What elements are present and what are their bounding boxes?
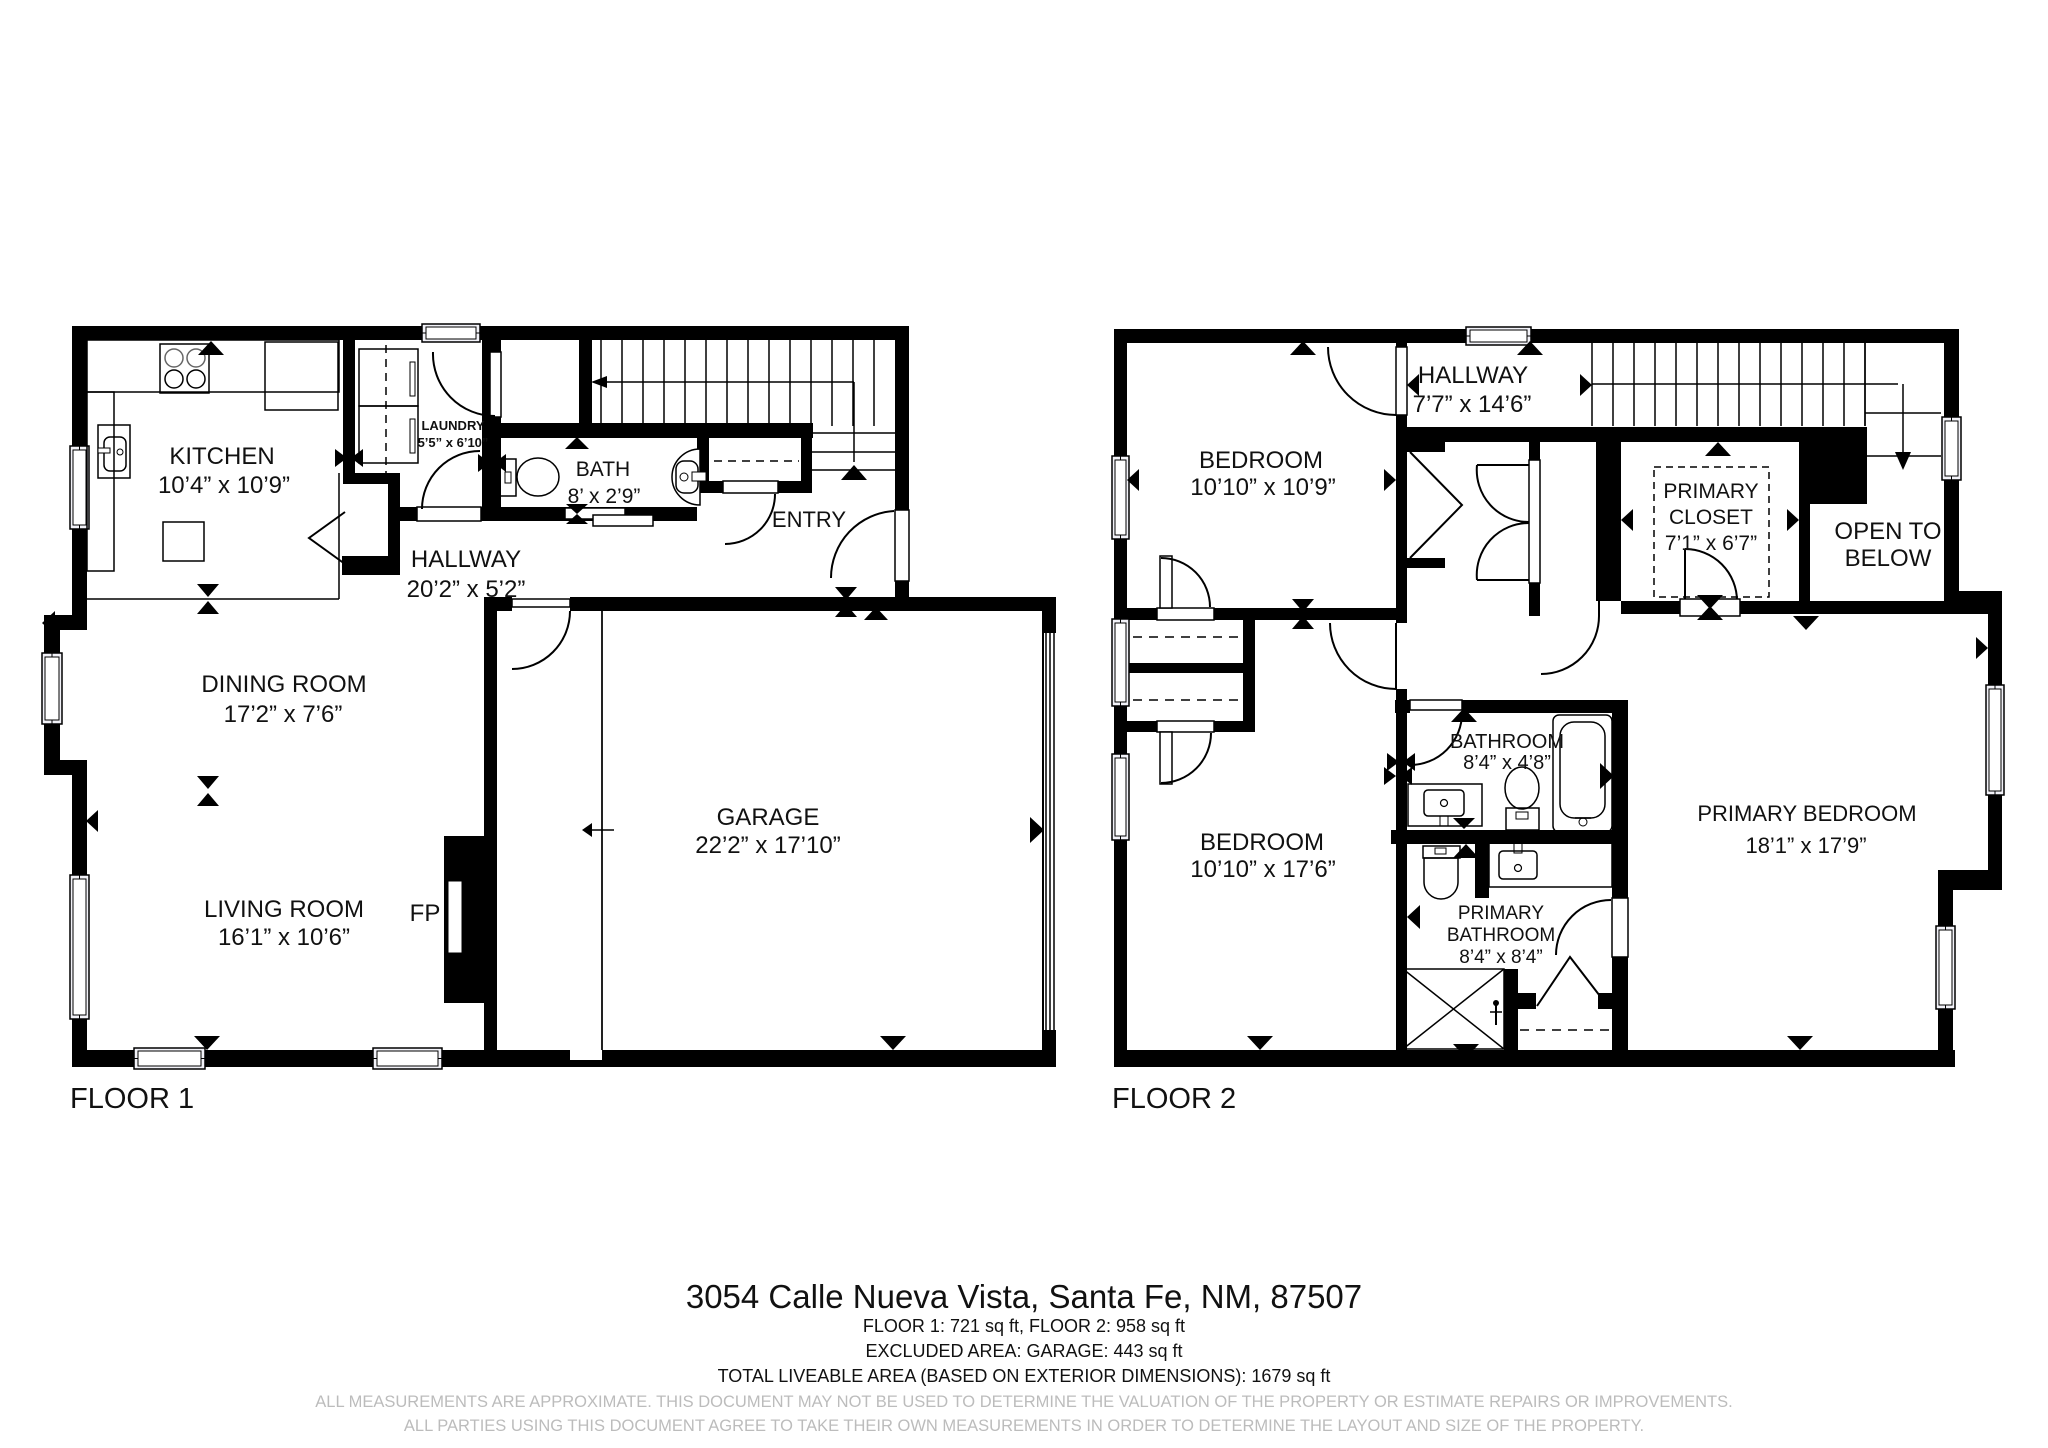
svg-text:18’1” x 17’9”: 18’1” x 17’9”: [1745, 833, 1866, 858]
svg-text:DINING ROOM: DINING ROOM: [201, 671, 366, 698]
svg-text:FP: FP: [410, 900, 441, 927]
svg-text:10’10” x 17’6”: 10’10” x 17’6”: [1190, 856, 1335, 883]
svg-text:ALL PARTIES USING THIS DOCUMEN: ALL PARTIES USING THIS DOCUMENT AGREE TO…: [404, 1417, 1644, 1435]
svg-text:LIVING ROOM: LIVING ROOM: [204, 896, 364, 923]
svg-text:PRIMARY BEDROOM: PRIMARY BEDROOM: [1697, 801, 1916, 826]
svg-text:22’2” x 17’10”: 22’2” x 17’10”: [695, 832, 840, 859]
svg-text:7’1” x 6’7”: 7’1” x 6’7”: [1665, 532, 1757, 555]
svg-text:7’7” x 14’6”: 7’7” x 14’6”: [1413, 391, 1532, 418]
svg-text:CLOSET: CLOSET: [1669, 506, 1753, 529]
svg-text:FLOOR 2: FLOOR 2: [1112, 1083, 1236, 1115]
svg-text:GARAGE: GARAGE: [717, 804, 820, 831]
svg-text:BEDROOM: BEDROOM: [1199, 447, 1323, 474]
svg-text:PRIMARY: PRIMARY: [1663, 480, 1758, 503]
svg-text:FLOOR 1: 721 sq ft, FLOOR 2: 9: FLOOR 1: 721 sq ft, FLOOR 2: 958 sq ft: [863, 1316, 1185, 1336]
svg-text:5’5” x 6’10”: 5’5” x 6’10”: [418, 435, 489, 450]
svg-text:BATH: BATH: [576, 458, 630, 481]
svg-text:ALL MEASUREMENTS ARE APPROXIMA: ALL MEASUREMENTS ARE APPROXIMATE. THIS D…: [315, 1393, 1732, 1411]
svg-text:16’1” x 10’6”: 16’1” x 10’6”: [218, 924, 350, 951]
svg-text:8’4” x 4’8”: 8’4” x 4’8”: [1463, 752, 1551, 774]
svg-text:BATHROOM: BATHROOM: [1447, 925, 1555, 946]
svg-text:HALLWAY: HALLWAY: [411, 546, 521, 573]
svg-text:BELOW: BELOW: [1845, 545, 1932, 572]
svg-text:HALLWAY: HALLWAY: [1418, 362, 1528, 389]
svg-text:PRIMARY: PRIMARY: [1458, 903, 1545, 924]
svg-text:10’4” x 10’9”: 10’4” x 10’9”: [158, 472, 290, 499]
svg-text:TOTAL LIVEABLE AREA (BASED ON: TOTAL LIVEABLE AREA (BASED ON EXTERIOR D…: [718, 1366, 1331, 1386]
svg-text:20’2” x 5’2”: 20’2” x 5’2”: [407, 576, 526, 603]
svg-text:17’2” x 7’6”: 17’2” x 7’6”: [224, 701, 343, 728]
svg-text:8’4” x 8’4”: 8’4” x 8’4”: [1459, 947, 1542, 968]
svg-text:KITCHEN: KITCHEN: [169, 443, 274, 470]
svg-text:BEDROOM: BEDROOM: [1200, 829, 1324, 856]
svg-text:FLOOR 1: FLOOR 1: [70, 1083, 194, 1115]
svg-text:10’10” x 10’9”: 10’10” x 10’9”: [1190, 474, 1335, 501]
svg-text:BATHROOM: BATHROOM: [1450, 731, 1564, 753]
svg-text:3054 Calle Nueva Vista, Santa: 3054 Calle Nueva Vista, Santa Fe, NM, 87…: [686, 1278, 1362, 1315]
svg-text:ENTRY: ENTRY: [772, 507, 846, 532]
svg-text:EXCLUDED AREA: GARAGE: 443 sq: EXCLUDED AREA: GARAGE: 443 sq ft: [865, 1341, 1182, 1361]
svg-text:OPEN TO: OPEN TO: [1834, 518, 1941, 545]
svg-text:LAUNDRY: LAUNDRY: [421, 418, 484, 433]
